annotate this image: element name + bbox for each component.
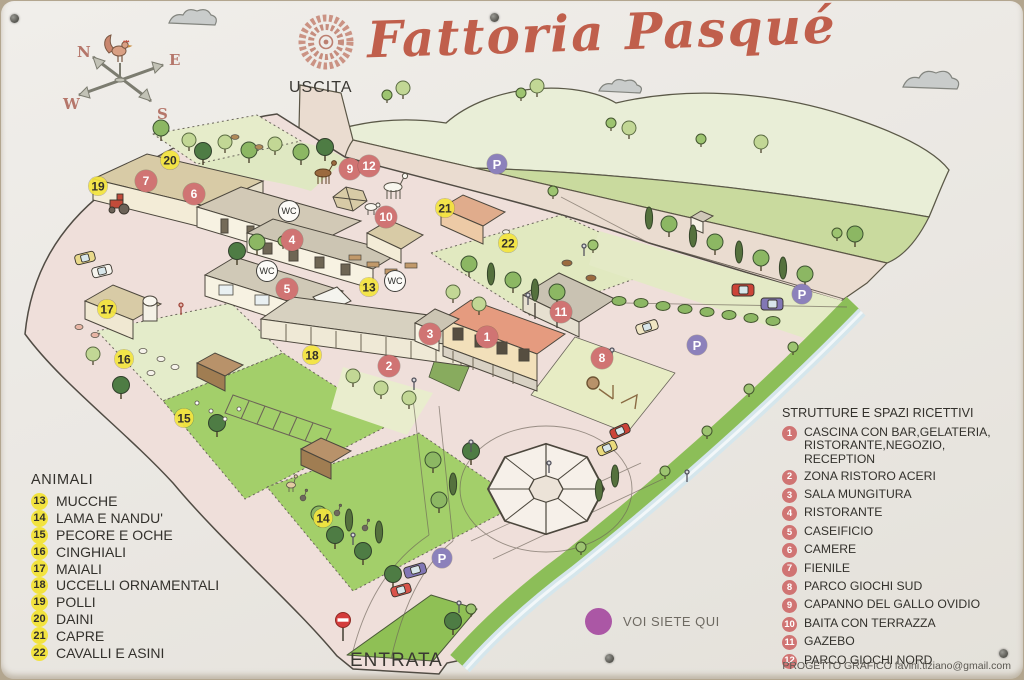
map-marker-structure-12: 12	[358, 155, 380, 177]
map-marker-parking-4: P	[432, 548, 452, 568]
legend-badge-18: 18	[31, 577, 48, 594]
legend-item-animal-18: 18UCCELLI ORNAMENTALI	[31, 577, 281, 594]
legend-animals-list: 13MUCCHE14LAMA E NANDU'15PECORE E OCHE16…	[31, 493, 281, 661]
map-marker-structure-5: 5	[276, 278, 298, 300]
map-marker-wc-3: WC	[385, 271, 405, 291]
legend-badge-3: 3	[782, 488, 797, 503]
legend-item-animal-15: 15PECORE E OCHE	[31, 527, 281, 544]
legend-label: UCCELLI ORNAMENTALI	[56, 577, 219, 593]
legend-item-structure-1: 1CASCINA CON BAR,GELATERIA, RISTORANTE,N…	[782, 426, 1010, 466]
legend-badge-7: 7	[782, 562, 797, 577]
legend-label: LAMA E NANDU'	[56, 510, 163, 526]
legend-item-animal-17: 17MAIALI	[31, 560, 281, 577]
legend-label: MAIALI	[56, 561, 102, 577]
legend-badge-20: 20	[31, 610, 48, 627]
map-marker-animal-22: 22	[499, 234, 518, 253]
legend-item-animal-20: 20DAINI	[31, 611, 281, 628]
legend-label: FIENILE	[804, 562, 850, 575]
legend-label: CAMERE	[804, 543, 856, 556]
map-marker-structure-11: 11	[550, 301, 572, 323]
legend-badge-5: 5	[782, 525, 797, 540]
legend-badge-14: 14	[31, 510, 48, 527]
legend-label: CAPRE	[56, 628, 104, 644]
legend-item-structure-5: 5CASEIFICIO	[782, 525, 1010, 540]
legend-item-structure-2: 2ZONA RISTORO ACERI	[782, 470, 1010, 485]
you-are-here-label: VOI SIETE QUI	[623, 614, 720, 629]
sign-board: Fattoria Pasqué N E W S USCITA	[1, 1, 1023, 679]
map-marker-parking-2: P	[687, 335, 707, 355]
credit-line: PROGETTO GRAFICO favini.tiziano@gmail.co…	[782, 660, 1011, 672]
legend-item-structure-4: 4RISTORANTE	[782, 506, 1010, 521]
legend-badge-1: 1	[782, 426, 797, 441]
legend-label: CASCINA CON BAR,GELATERIA, RISTORANTE,NE…	[804, 426, 1010, 466]
rosette-logo	[293, 9, 359, 75]
map-marker-parking-1: P	[487, 154, 507, 174]
legend-item-animal-13: 13MUCCHE	[31, 493, 281, 510]
legend-item-animal-19: 19POLLI	[31, 594, 281, 611]
screw-icon	[999, 649, 1008, 658]
compass-s: S	[157, 105, 168, 123]
map-marker-parking-3: P	[792, 284, 812, 304]
map-marker-structure-2: 2	[378, 355, 400, 377]
map-marker-animal-18: 18	[303, 346, 322, 365]
legend-badge-4: 4	[782, 506, 797, 521]
map-marker-wc-2: WC	[257, 261, 277, 281]
map-marker-structure-1: 1	[476, 326, 498, 348]
legend-item-animal-16: 16CINGHIALI	[31, 543, 281, 560]
legend-item-structure-7: 7FIENILE	[782, 562, 1010, 577]
legend-badge-16: 16	[31, 543, 48, 560]
legend-label: DAINI	[56, 611, 93, 627]
legend-label: RISTORANTE	[804, 506, 882, 519]
legend-label: BAITA CON TERRAZZA	[804, 617, 936, 630]
legend-label: MUCCHE	[56, 493, 117, 509]
legend-animals: ANIMALI 13MUCCHE14LAMA E NANDU'15PECORE …	[31, 472, 281, 661]
screw-icon	[605, 654, 614, 663]
map-marker-animal-21: 21	[436, 199, 455, 218]
legend-structures: STRUTTURE E SPAZI RICETTIVI 1CASCINA CON…	[782, 406, 1010, 672]
you-are-here-dot	[585, 608, 612, 635]
legend-badge-2: 2	[782, 470, 797, 485]
legend-label: CINGHIALI	[56, 544, 126, 560]
legend-badge-6: 6	[782, 543, 797, 558]
legend-item-animal-14: 14LAMA E NANDU'	[31, 510, 281, 527]
legend-badge-13: 13	[31, 493, 48, 510]
map-marker-animal-13: 13	[360, 278, 379, 297]
map-marker-structure-3: 3	[419, 323, 441, 345]
legend-label: CASEIFICIO	[804, 525, 873, 538]
legend-label: PARCO GIOCHI SUD	[804, 580, 922, 593]
legend-label: GAZEBO	[804, 635, 855, 648]
legend-label: CAVALLI E ASINI	[56, 645, 164, 661]
map-marker-animal-15: 15	[175, 409, 194, 428]
map-marker-structure-6: 6	[183, 183, 205, 205]
legend-label: ZONA RISTORO ACERI	[804, 470, 936, 483]
map-marker-structure-4: 4	[281, 229, 303, 251]
map-marker-animal-16: 16	[115, 350, 134, 369]
compass-e: E	[169, 51, 180, 69]
legend-label: SALA MUNGITURA	[804, 488, 912, 501]
map-marker-animal-17: 17	[98, 300, 117, 319]
legend-badge-15: 15	[31, 527, 48, 544]
legend-badge-21: 21	[31, 627, 48, 644]
map-marker-structure-10: 10	[375, 206, 397, 228]
legend-item-animal-21: 21CAPRE	[31, 627, 281, 644]
compass-weathervane: N E W S	[31, 21, 221, 151]
map-marker-animal-19: 19	[89, 177, 108, 196]
uscita-label: USCITA	[289, 79, 352, 97]
legend-label: POLLI	[56, 594, 96, 610]
you-are-here: VOI SIETE QUI	[585, 608, 720, 635]
legend-label: CAPANNO DEL GALLO OVIDIO	[804, 598, 980, 611]
map-marker-animal-14: 14	[314, 509, 333, 528]
legend-badge-8: 8	[782, 580, 797, 595]
compass-n: N	[77, 43, 91, 61]
screw-icon	[10, 14, 19, 23]
legend-badge-9: 9	[782, 598, 797, 613]
legend-structures-list: 1CASCINA CON BAR,GELATERIA, RISTORANTE,N…	[782, 426, 1010, 669]
legend-badge-10: 10	[782, 617, 797, 632]
legend-item-structure-3: 3SALA MUNGITURA	[782, 488, 1010, 503]
legend-badge-19: 19	[31, 594, 48, 611]
legend-animals-title: ANIMALI	[31, 472, 281, 488]
legend-item-structure-11: 11GAZEBO	[782, 635, 1010, 650]
map-marker-structure-7: 7	[135, 170, 157, 192]
legend-badge-22: 22	[31, 644, 48, 661]
legend-badge-11: 11	[782, 635, 797, 650]
screw-icon	[490, 13, 499, 22]
legend-item-structure-6: 6CAMERE	[782, 543, 1010, 558]
legend-label: PECORE E OCHE	[56, 527, 173, 543]
legend-badge-17: 17	[31, 560, 48, 577]
legend-item-structure-10: 10BAITA CON TERRAZZA	[782, 617, 1010, 632]
map-marker-animal-20: 20	[161, 151, 180, 170]
map-marker-structure-8: 8	[591, 347, 613, 369]
legend-item-structure-9: 9CAPANNO DEL GALLO OVIDIO	[782, 598, 1010, 613]
map-marker-wc-1: WC	[279, 201, 299, 221]
legend-item-animal-22: 22CAVALLI E ASINI	[31, 644, 281, 661]
legend-structures-title: STRUTTURE E SPAZI RICETTIVI	[782, 406, 1010, 420]
compass-w: W	[62, 95, 81, 113]
entrata-label: ENTRATA	[350, 650, 443, 672]
legend-item-structure-8: 8PARCO GIOCHI SUD	[782, 580, 1010, 595]
